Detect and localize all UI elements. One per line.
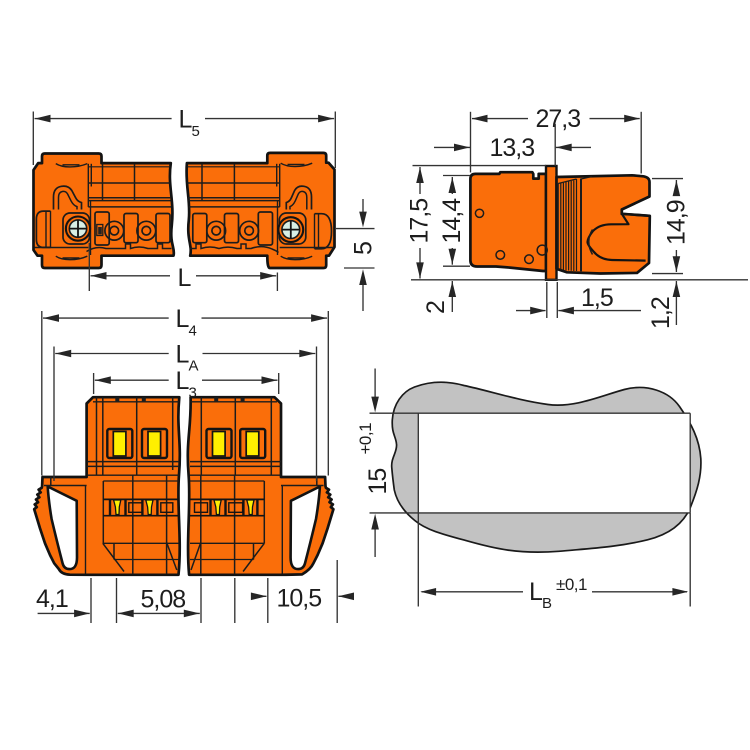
svg-text:10,5: 10,5 [277, 585, 322, 613]
svg-text:3: 3 [189, 385, 197, 402]
svg-text:L: L [529, 578, 543, 606]
svg-text:L: L [179, 106, 193, 134]
svg-text:L: L [178, 264, 192, 292]
svg-text:B: B [542, 595, 552, 612]
svg-text:L: L [176, 340, 190, 368]
svg-text:1,2: 1,2 [647, 297, 675, 329]
svg-text:17,5: 17,5 [406, 199, 434, 244]
svg-text:14,9: 14,9 [663, 200, 691, 245]
svg-text:5: 5 [350, 242, 378, 255]
svg-text:13,3: 13,3 [490, 134, 535, 162]
svg-text:A: A [189, 358, 199, 375]
svg-text:±0,1: ±0,1 [556, 575, 587, 594]
svg-text:L: L [176, 305, 190, 333]
svg-text:1,5: 1,5 [581, 284, 613, 312]
svg-text:4,1: 4,1 [36, 585, 68, 613]
svg-text:27,3: 27,3 [536, 105, 581, 133]
svg-text:5: 5 [192, 123, 200, 140]
svg-text:L: L [176, 367, 190, 395]
svg-text:+0,1: +0,1 [356, 423, 375, 455]
svg-text:15: 15 [364, 469, 392, 495]
svg-text:2: 2 [422, 301, 450, 314]
svg-text:5,08: 5,08 [141, 586, 186, 614]
svg-text:4: 4 [189, 323, 197, 340]
svg-text:14,4: 14,4 [438, 198, 466, 244]
